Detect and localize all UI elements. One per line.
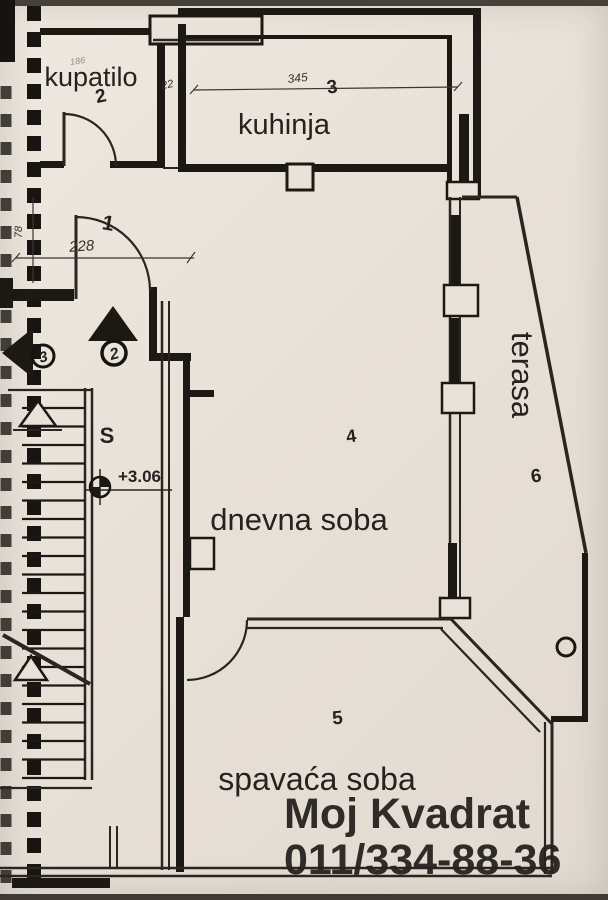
photo-corner-dark (0, 0, 15, 62)
watermark-company: Moj Kvadrat (284, 790, 530, 838)
bottom-window-bar (12, 878, 110, 888)
bedroom-door-arc (187, 620, 247, 680)
dimension-78: 78 (13, 225, 25, 238)
dimension-345: 345 (287, 70, 309, 86)
stair-treads (22, 408, 85, 778)
level-value: +3.06 (118, 467, 161, 486)
stairs-label: S (100, 423, 115, 448)
bathroom-door-arc (64, 112, 116, 166)
kitchen-window-bar (459, 114, 469, 184)
stairs-up-arrow (20, 401, 56, 426)
window-bar (450, 318, 459, 384)
floor-plan-drawing: 2 3 +3.06 345 228 78 22 186 kupatilo kuh… (0, 0, 608, 900)
photo-edge-bottom (0, 894, 608, 900)
photo-edge-top (0, 0, 608, 6)
room-label-kuhinja: kuhinja (238, 109, 331, 141)
room-label-kupatilo: kupatilo (44, 62, 137, 92)
room-label-dnevna-soba: dnevna soba (210, 502, 388, 537)
terrace-column (557, 638, 575, 656)
kitchen-walls (178, 8, 481, 199)
stairs (3, 388, 92, 780)
watermark-phone: 011/334-88-36 (284, 836, 561, 884)
room-number-1: 1 (100, 211, 116, 236)
watermark: Moj Kvadrat 011/334-88-36 (284, 790, 561, 884)
entry-arrow-up-number: 2 (107, 345, 121, 364)
bottom-left-room (0, 788, 117, 888)
window-bar (451, 215, 460, 285)
floor-plan-photo: 2 3 +3.06 345 228 78 22 186 kupatilo kuh… (0, 0, 608, 900)
kitchen-door-opening (287, 164, 313, 190)
room-number-4: 4 (345, 425, 358, 446)
room-number-6: 6 (530, 465, 543, 487)
east-wall-windows (440, 197, 478, 619)
terrace-walls (462, 197, 588, 722)
room-label-terasa: terasa (505, 332, 540, 419)
window-bar (448, 543, 457, 601)
level-marker: +3.06 (84, 467, 172, 505)
corridor-walls (162, 301, 169, 870)
room-number-5: 5 (331, 708, 344, 730)
room-number-3: 3 (326, 76, 339, 98)
dimension-22: 22 (159, 78, 174, 92)
entry-arrow-left-number: 3 (37, 348, 50, 367)
dimension-228: 228 (68, 237, 96, 256)
entry-arrow-up: 2 (88, 306, 138, 365)
